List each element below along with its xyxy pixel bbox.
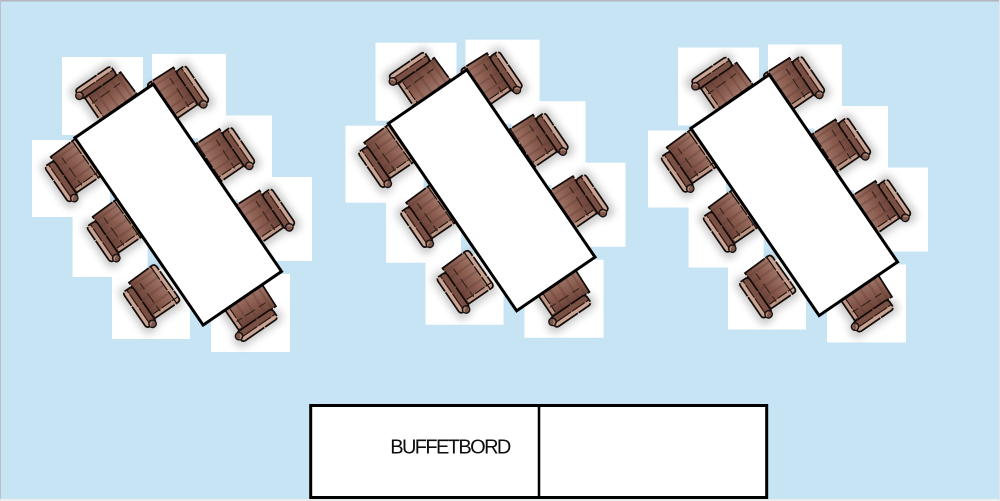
svg-text:BUFFETBORD: BUFFETBORD [390, 437, 511, 459]
